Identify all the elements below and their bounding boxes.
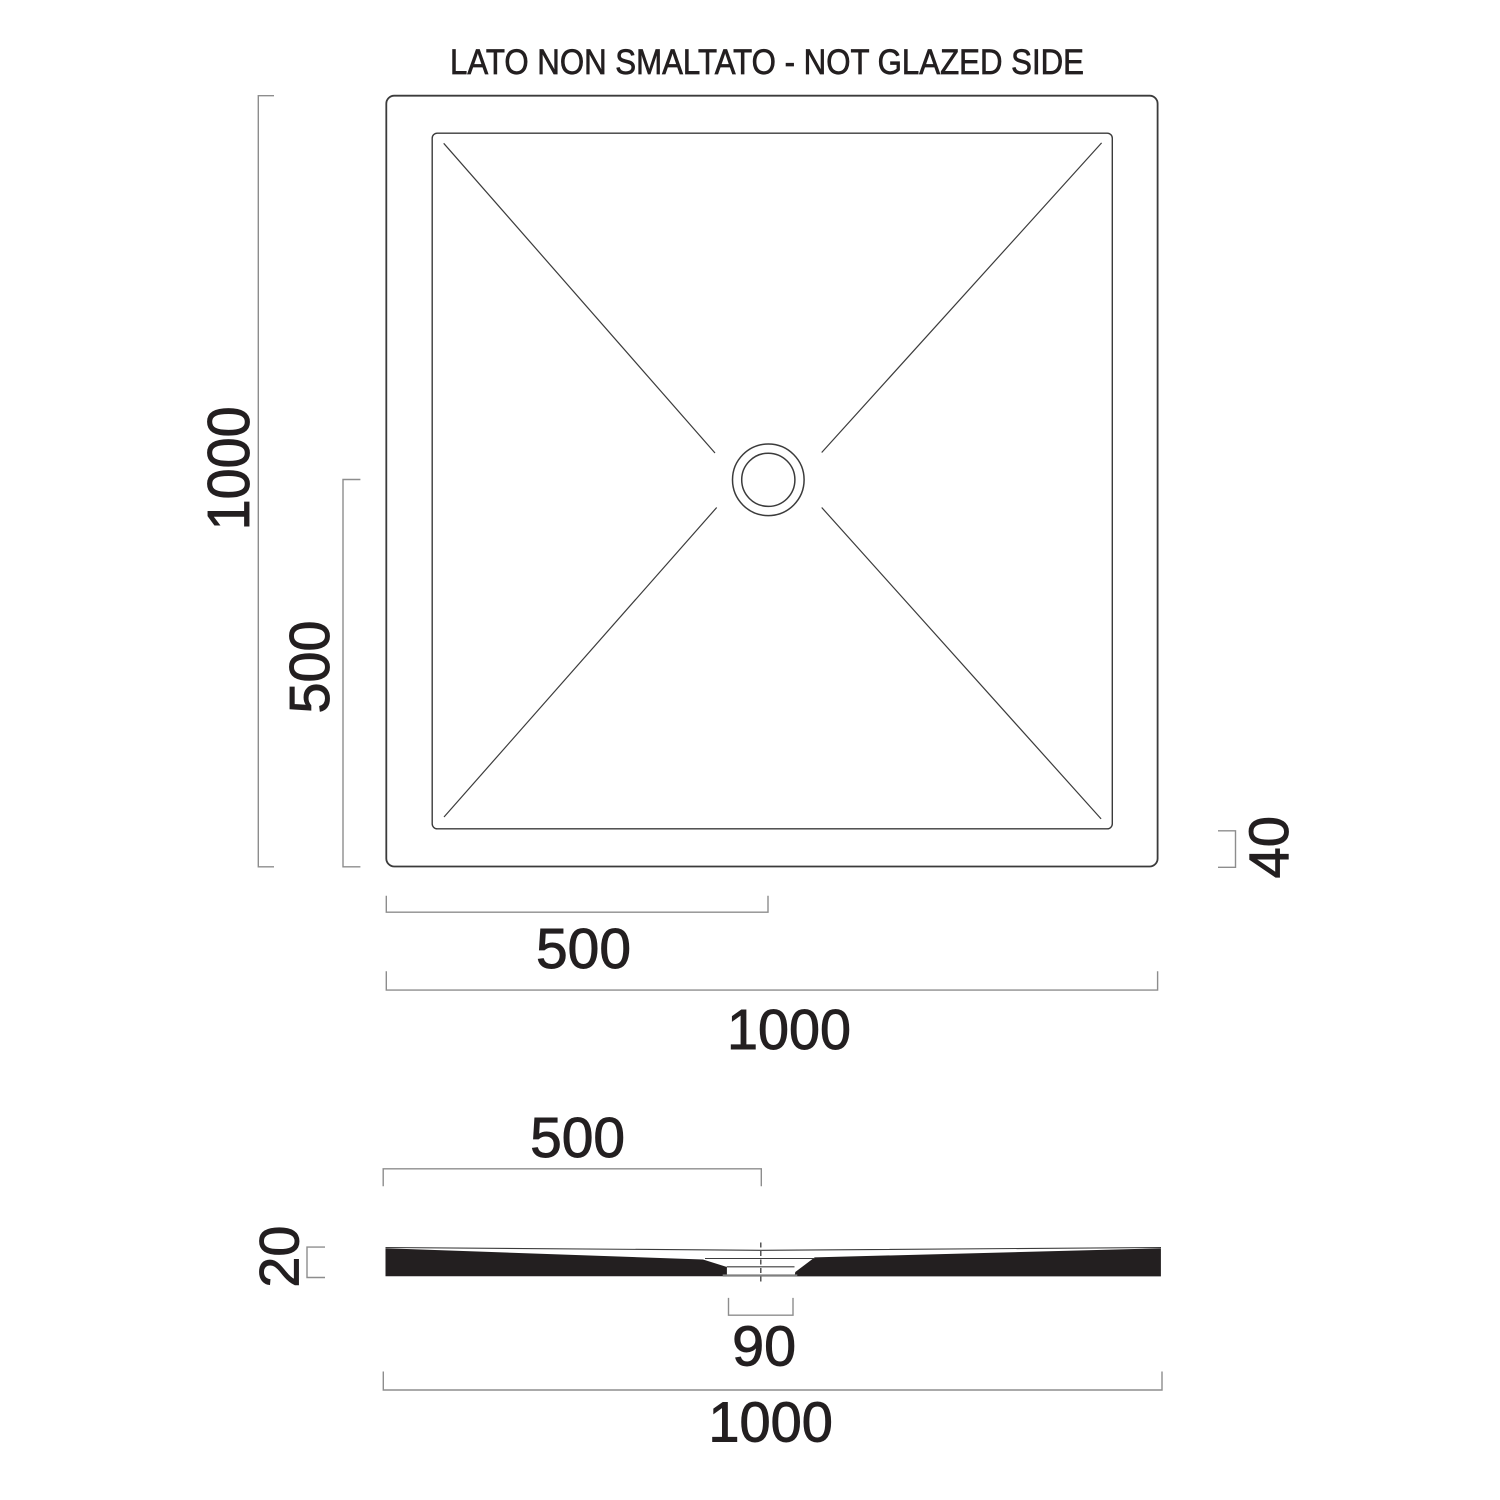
svg-text:500: 500 [530,1106,625,1170]
svg-text:90: 90 [732,1315,796,1379]
svg-text:500: 500 [278,621,342,714]
svg-text:1000: 1000 [727,998,851,1062]
svg-text:40: 40 [1237,816,1300,879]
svg-text:1000: 1000 [708,1391,833,1455]
svg-text:500: 500 [536,917,631,981]
svg-text:LATO NON SMALTATO - NOT GLAZED: LATO NON SMALTATO - NOT GLAZED SIDE [450,43,1084,82]
svg-text:1000: 1000 [196,406,262,530]
svg-text:20: 20 [247,1226,310,1288]
